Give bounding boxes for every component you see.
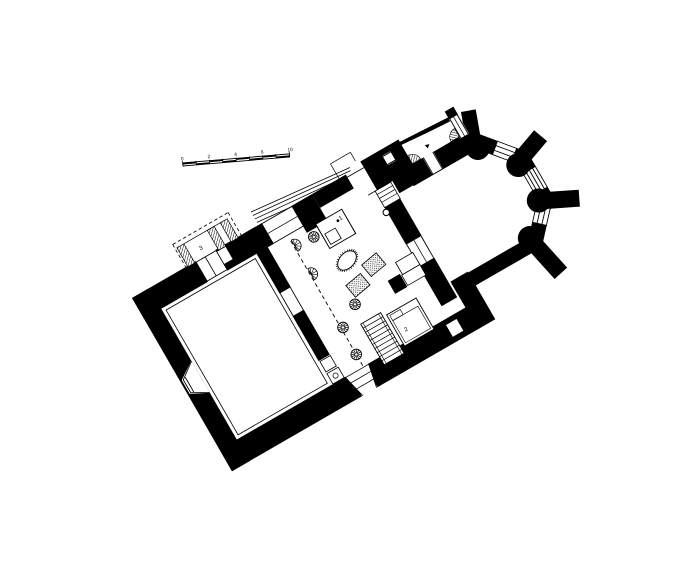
svg-text:10: 10 <box>287 147 293 153</box>
